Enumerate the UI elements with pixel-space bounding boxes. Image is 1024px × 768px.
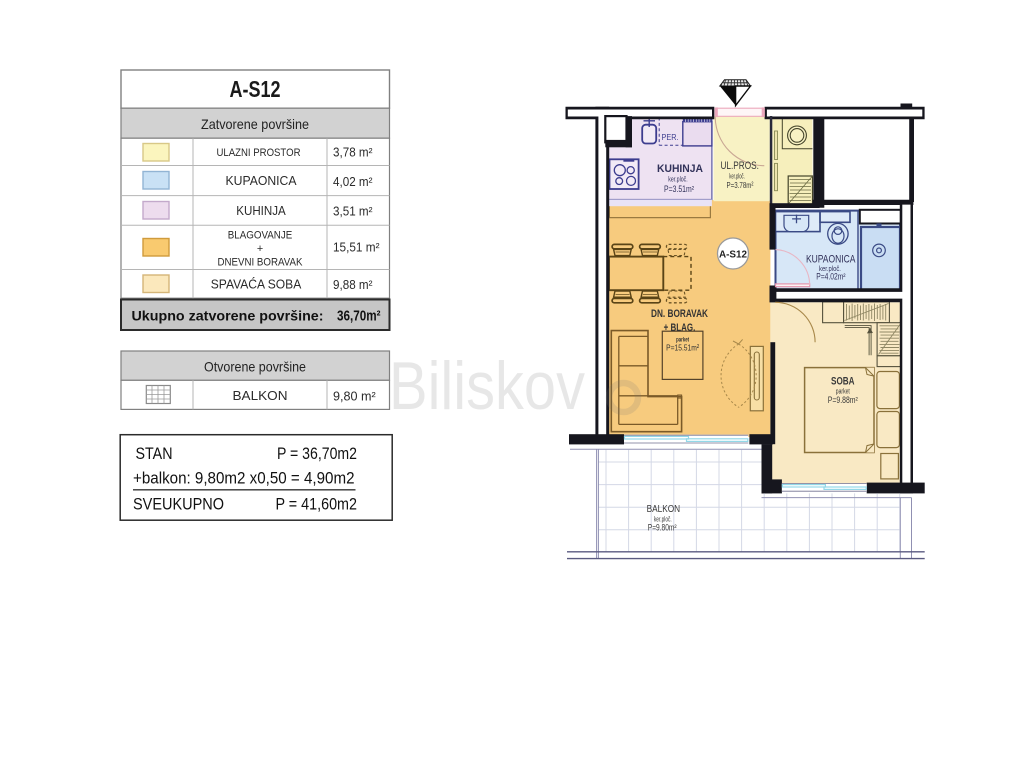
svg-text:36,70m²: 36,70m² <box>337 309 381 325</box>
svg-text:Biliskov: Biliskov <box>389 348 585 424</box>
svg-text:+balkon: 9,80m2 x0,50 = 4,90: +balkon: 9,80m2 x0,50 = 4,90m2 <box>133 469 355 488</box>
svg-text:A-S12: A-S12 <box>719 249 747 260</box>
svg-text:+: + <box>257 243 263 255</box>
svg-text:P = 41,60m2: P = 41,60m2 <box>276 494 358 513</box>
svg-text:3,78 m²: 3,78 m² <box>333 146 373 160</box>
svg-text:P=9.88m²: P=9.88m² <box>828 395 858 405</box>
svg-text:P=4.02m²: P=4.02m² <box>816 272 845 282</box>
svg-text:P=3.78m²: P=3.78m² <box>727 180 754 190</box>
svg-text:ULAZNI PROSTOR: ULAZNI PROSTOR <box>217 147 301 159</box>
svg-text:DN. BORAVAK: DN. BORAVAK <box>651 308 708 320</box>
svg-text:ker.ploč.: ker.ploč. <box>668 174 688 183</box>
svg-text:BLAGOVANJE: BLAGOVANJE <box>228 230 293 242</box>
svg-text:9,88 m²: 9,88 m² <box>333 278 373 292</box>
svg-text:A-S12: A-S12 <box>230 76 281 102</box>
svg-text:KUPAONICA: KUPAONICA <box>226 173 297 188</box>
svg-text:P=3.51m²: P=3.51m² <box>664 184 694 194</box>
svg-text:9,80 m²: 9,80 m² <box>333 390 376 404</box>
svg-text:DNEVNI BORAVAK: DNEVNI BORAVAK <box>218 257 304 269</box>
svg-text:UL.PROS.: UL.PROS. <box>720 160 759 172</box>
svg-text:BALKON: BALKON <box>233 389 288 403</box>
svg-text:KUHINJA: KUHINJA <box>236 203 286 218</box>
svg-text:SVEUKUPNO: SVEUKUPNO <box>133 494 224 513</box>
svg-text:SOBA: SOBA <box>831 375 855 387</box>
svg-text:+ BLAG.: + BLAG. <box>664 322 696 334</box>
svg-text:P=9.80m²: P=9.80m² <box>648 523 677 533</box>
svg-text:Zatvorene površine: Zatvorene površine <box>201 116 309 132</box>
svg-text:Ukupno zatvorene površine:: Ukupno zatvorene površine: <box>132 309 324 324</box>
svg-text:P = 36,70m2: P = 36,70m2 <box>277 444 357 463</box>
svg-text:Otvorene površine: Otvorene površine <box>204 359 306 375</box>
svg-text:KUHINJA: KUHINJA <box>657 163 703 175</box>
svg-text:P=15.51m²: P=15.51m² <box>666 343 699 353</box>
svg-text:PER.: PER. <box>662 132 679 142</box>
svg-text:BALKON: BALKON <box>647 504 681 515</box>
svg-text:4,02 m²: 4,02 m² <box>333 175 373 189</box>
svg-text:15,51 m²: 15,51 m² <box>333 241 380 255</box>
svg-text:3,51 m²: 3,51 m² <box>333 205 373 219</box>
svg-text:KUPAONICA: KUPAONICA <box>806 253 856 265</box>
svg-text:STAN: STAN <box>136 444 173 463</box>
svg-text:SPAVAĆA SOBA: SPAVAĆA SOBA <box>211 277 302 292</box>
